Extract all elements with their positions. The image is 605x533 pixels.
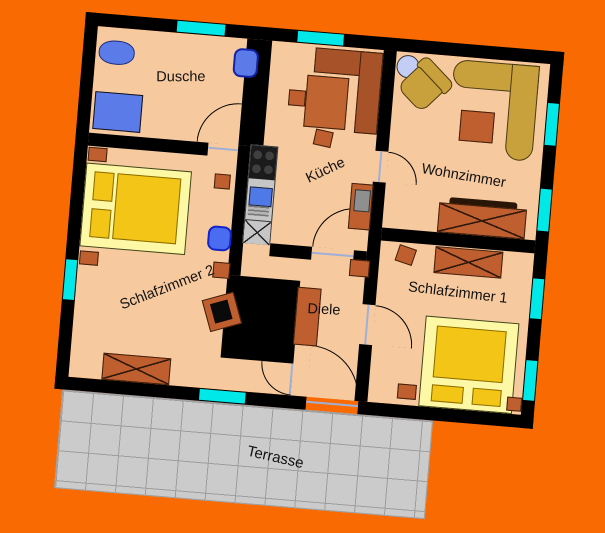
pillow xyxy=(471,388,501,407)
kitchen-sink xyxy=(248,186,273,207)
kitchen-cabinet xyxy=(348,183,374,231)
sink-drainer xyxy=(248,205,270,217)
room-label-dusche: Dusche xyxy=(156,69,205,85)
worktop xyxy=(243,219,271,245)
nightstand-sz2-bottom xyxy=(79,250,99,266)
pillow xyxy=(89,208,111,239)
nightstand-sz1-left xyxy=(397,383,417,400)
mattress xyxy=(112,173,181,244)
dresser-schlafzimmer1 xyxy=(433,246,503,279)
dresser-schlafzimmer2 xyxy=(101,353,171,386)
dining-table xyxy=(303,75,349,130)
toilet xyxy=(232,48,259,79)
bed-schlafzimmer2 xyxy=(79,163,192,256)
nightstand-sz2-top xyxy=(88,147,108,163)
pillow xyxy=(92,171,114,202)
bed-schlafzimmer1 xyxy=(418,315,519,414)
threshold-entrance xyxy=(306,401,358,407)
stool-kitchen-1 xyxy=(288,89,306,106)
room-label-diele: Diele xyxy=(307,301,341,319)
coffee-table xyxy=(459,110,495,144)
nightstand-sz1-right xyxy=(506,397,522,412)
stool-schlafzimmer2-a xyxy=(214,173,231,189)
stove xyxy=(249,145,278,180)
laundry-basket xyxy=(207,225,233,252)
floor-plan-canvas: Terrasse xyxy=(0,0,605,533)
chair-seat xyxy=(210,300,233,324)
mattress xyxy=(433,325,507,383)
hall-cabinet xyxy=(349,259,370,278)
shower xyxy=(92,91,143,133)
apartment-floor-plan: Terrasse xyxy=(46,12,564,528)
pillow xyxy=(431,384,464,404)
cabinet-front xyxy=(353,189,371,212)
